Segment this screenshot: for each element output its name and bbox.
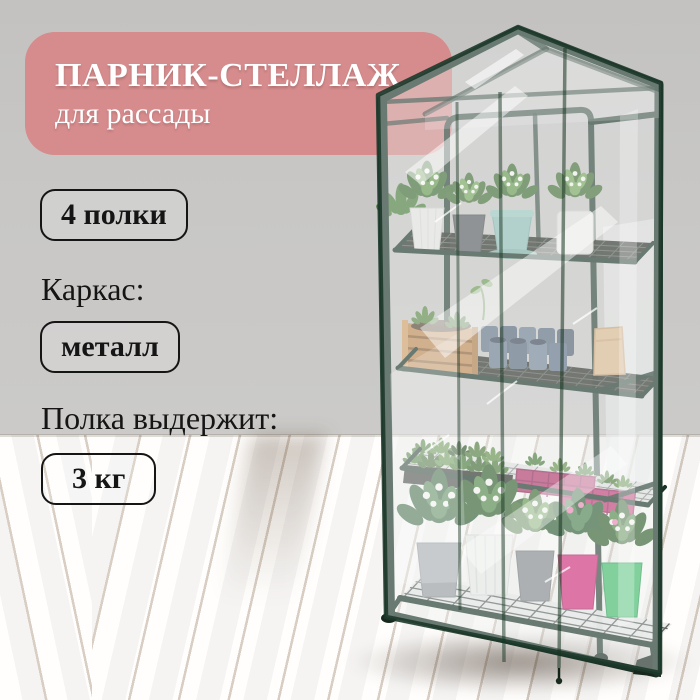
pvc-film-cover	[378, 27, 661, 684]
shelf-count-badge: 4 полки	[40, 189, 188, 241]
frame-label: Каркас:	[41, 271, 144, 307]
zipper-pull	[556, 668, 562, 684]
capacity-label: Полка выдержит:	[41, 400, 278, 436]
greenhouse-product-photo	[365, 22, 675, 692]
product-card: ПАРНИК-СТЕЛЛАЖ для рассады	[0, 0, 700, 700]
capacity-badge: 3 кг	[41, 453, 156, 505]
frame-material-badge: металл	[40, 321, 180, 373]
